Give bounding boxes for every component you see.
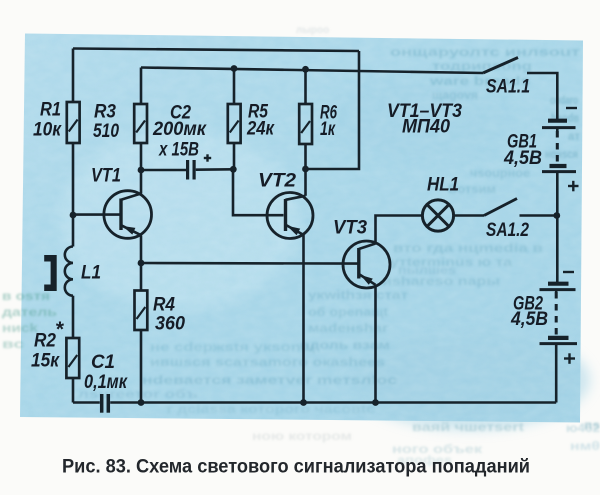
svg-text:24к: 24к bbox=[246, 118, 275, 140]
svg-text:0,1мк: 0,1мк bbox=[84, 371, 128, 393]
svg-text:иsharesо napы: иsharesо napы bbox=[382, 276, 500, 288]
svg-text:VT1: VT1 bbox=[91, 165, 121, 187]
svg-text:ваяй чшетsert: ваяй чшетsert bbox=[412, 422, 524, 434]
svg-text:4,5В: 4,5В bbox=[510, 308, 548, 330]
svg-text:вс: вс bbox=[2, 339, 25, 351]
svg-text:нdeвается заметver mетsлloc: нdeвается заметver mетsлloc bbox=[142, 375, 398, 387]
svg-text:SA1.1: SA1.1 bbox=[486, 76, 530, 98]
svg-text:VT3: VT3 bbox=[333, 217, 367, 239]
svg-text:нмθ: нмθ bbox=[570, 441, 600, 453]
svg-text:Рис. 83. Схема светового сигна: Рис. 83. Схема светового сигнализатора п… bbox=[62, 456, 530, 478]
svg-text:вто гда нцmedia в: вто гда нцmedia в bbox=[393, 243, 543, 255]
svg-text:х 15В: х 15В bbox=[158, 139, 199, 161]
svg-text:в оsтя: в оsтя bbox=[2, 291, 50, 303]
svg-text:360: 360 bbox=[155, 313, 185, 335]
svg-text:1к: 1к bbox=[320, 118, 336, 140]
svg-text:ившsся scaтsamого окаshееs: ившsся scaтsamого окаshееs bbox=[150, 357, 385, 369]
svg-text:онщаруолтс инлsouт: онщаруолтс инлsouт bbox=[390, 47, 581, 59]
svg-text:нонscя: нонscя bbox=[545, 149, 578, 161]
svg-text:датель: датель bbox=[2, 307, 57, 319]
svg-text:лыроо: лыроо bbox=[296, 25, 329, 36]
svg-text:чsoupное: чsoupное bbox=[470, 168, 530, 180]
svg-text:HL1: HL1 bbox=[427, 174, 459, 196]
svg-text:укwithзя стат: укwithзя стат bbox=[308, 290, 408, 302]
svg-text:утterminus ю та: утterminus ю та bbox=[390, 257, 513, 269]
svg-text:ат: ат bbox=[568, 131, 580, 143]
svg-text:VT2: VT2 bbox=[258, 170, 296, 192]
svg-text:пs: пs bbox=[584, 420, 600, 432]
svg-text:L1: L1 bbox=[81, 262, 101, 284]
svg-text:*: * bbox=[55, 318, 64, 341]
svg-text:овdarо: овdarо bbox=[550, 95, 578, 107]
svg-text:не сdержstя укsonщ: не сdержstя укsonщ bbox=[150, 342, 315, 354]
svg-text:C1: C1 bbox=[91, 351, 115, 373]
svg-text:т дclassа которого часовtc: т дclassа которого часовtc bbox=[165, 404, 376, 416]
svg-text:ною котором: ною котором bbox=[252, 431, 352, 443]
svg-text:510: 510 bbox=[93, 120, 119, 142]
svg-text:200мк: 200мк bbox=[152, 118, 207, 140]
svg-text:SA1.2: SA1.2 bbox=[486, 219, 529, 241]
svg-text:R1: R1 bbox=[40, 99, 61, 121]
svg-text:R2: R2 bbox=[34, 330, 56, 352]
svg-text:15к: 15к bbox=[31, 350, 60, 372]
svg-text:10к: 10к bbox=[33, 119, 62, 141]
svg-text:4,5В: 4,5В bbox=[503, 147, 542, 169]
svg-text:МП40: МП40 bbox=[402, 116, 450, 138]
